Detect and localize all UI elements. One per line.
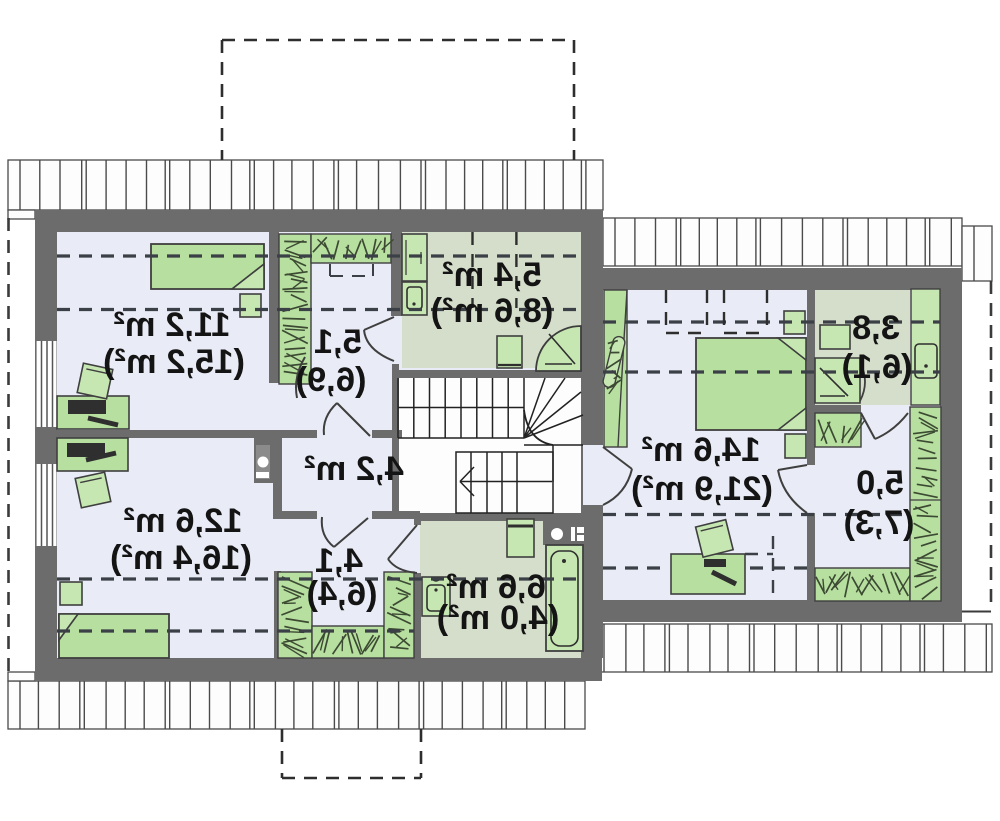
svg-text:(8,6 m²): (8,6 m²) — [431, 292, 554, 330]
svg-text:14,6 m²: 14,6 m² — [642, 431, 761, 469]
svg-text:11,2 m²: 11,2 m² — [114, 306, 231, 344]
svg-text:4,2 m²: 4,2 m² — [304, 450, 404, 488]
svg-text:(4,0 m²): (4,0 m²) — [437, 599, 560, 637]
svg-text:(6,4): (6,4) — [307, 575, 378, 613]
svg-text:(7,3): (7,3) — [844, 504, 915, 542]
svg-text:(6,9): (6,9) — [296, 361, 367, 399]
svg-text:3,8: 3,8 — [852, 309, 900, 347]
svg-text:(16,4 m²): (16,4 m²) — [110, 539, 252, 577]
svg-text:5,4 m²: 5,4 m² — [442, 256, 542, 294]
svg-text:5,1: 5,1 — [314, 323, 362, 361]
svg-text:(15,2 m²): (15,2 m²) — [103, 343, 245, 381]
svg-text:(21,9 m²): (21,9 m²) — [631, 470, 773, 508]
svg-text:(6,1): (6,1) — [842, 348, 913, 386]
svg-text:12,6 m²: 12,6 m² — [124, 502, 243, 540]
svg-text:5,0: 5,0 — [856, 464, 904, 502]
